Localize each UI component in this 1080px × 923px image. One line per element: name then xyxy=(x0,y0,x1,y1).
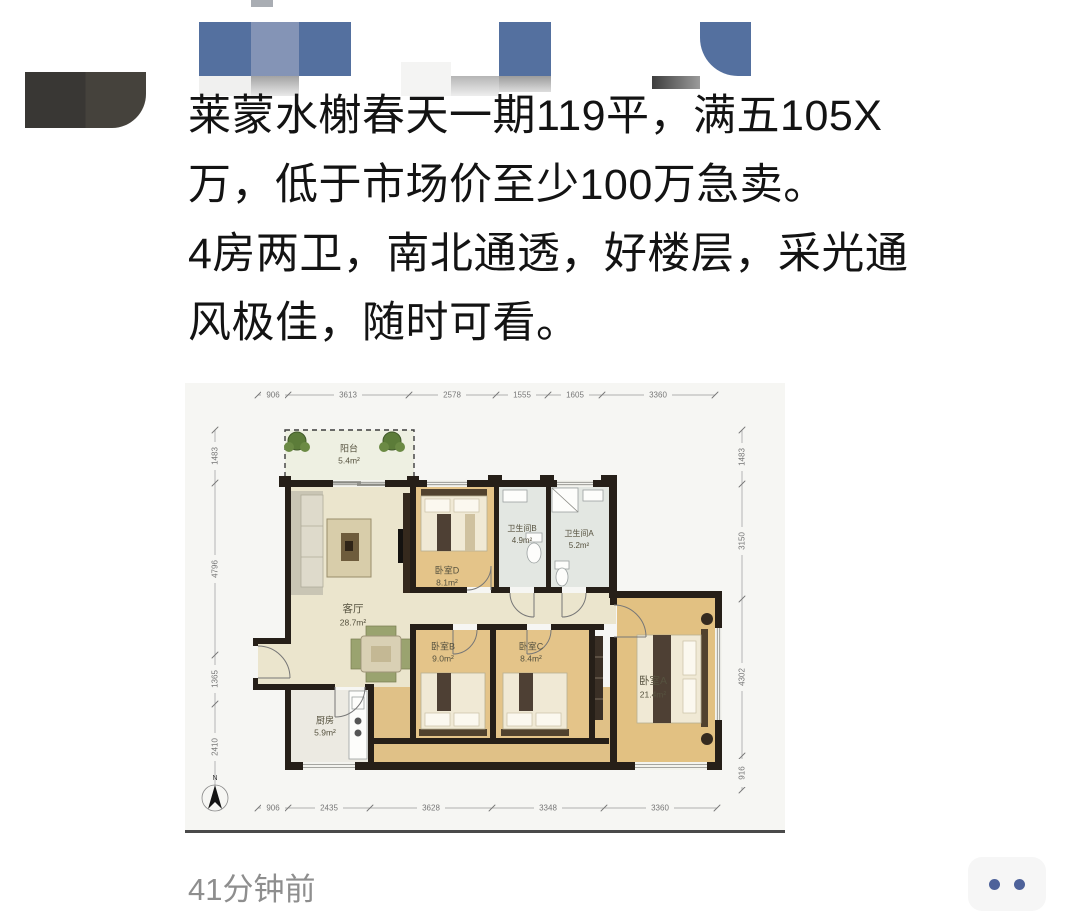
room-label-bedroom-b: 卧室B xyxy=(431,640,455,651)
dim-top-4: 1555 xyxy=(513,391,531,400)
dim-bottom-5: 3360 xyxy=(651,804,669,813)
room-label-bedroom-d: 卧室D xyxy=(435,564,460,575)
room-label-bath-b: 卫生间B xyxy=(507,523,536,533)
dim-left-1: 1483 xyxy=(211,447,220,465)
room-area-bedroom-a: 21.4m² xyxy=(640,689,667,699)
floorplan-svg: 阳台 5.4m² 客厅 28.7m² 卧室D 8.1m² 卫生间B 4.9m² … xyxy=(185,383,785,830)
dim-right-1: 1483 xyxy=(738,448,747,466)
dim-left-2: 4796 xyxy=(211,560,220,578)
room-label-balcony: 阳台 xyxy=(340,442,358,453)
dim-right-3: 4302 xyxy=(738,668,747,686)
room-label-living: 客厅 xyxy=(343,602,364,615)
north-compass-icon: N xyxy=(202,775,228,811)
dim-bottom-4: 3348 xyxy=(539,804,557,813)
north-label: N xyxy=(212,775,217,782)
two-dots-icon xyxy=(1014,879,1025,890)
dim-left-4: 2410 xyxy=(211,738,220,756)
room-label-bedroom-c: 卧室C xyxy=(519,640,544,651)
room-area-balcony: 5.4m² xyxy=(338,455,360,465)
post-timestamp: 41分钟前 xyxy=(188,864,315,909)
dim-bottom-1: 906 xyxy=(266,804,280,813)
mosaic-block xyxy=(499,22,551,76)
room-area-bedroom-b: 9.0m² xyxy=(432,653,454,663)
room-label-bedroom-a: 卧室A xyxy=(639,674,667,687)
room-area-kitchen: 5.9m² xyxy=(314,727,336,737)
dim-bottom-2: 2435 xyxy=(320,804,338,813)
mosaic-block xyxy=(251,0,273,7)
room-area-bedroom-d: 8.1m² xyxy=(436,577,458,587)
room-area-bath-b: 4.9m² xyxy=(512,536,533,545)
room-label-bath-a: 卫生间A xyxy=(564,528,594,538)
dim-right-4: 916 xyxy=(738,766,747,780)
comment-like-button[interactable] xyxy=(968,857,1046,911)
room-area-bedroom-c: 8.4m² xyxy=(520,653,542,663)
two-dots-icon xyxy=(989,879,1000,890)
dim-top-3: 2578 xyxy=(443,391,461,400)
mosaic-block xyxy=(251,22,299,76)
room-label-kitchen: 厨房 xyxy=(316,714,334,725)
avatar[interactable] xyxy=(25,72,146,128)
post-text-line: 莱蒙水榭春天一期119平，满五105X xyxy=(188,82,1038,151)
mosaic-block xyxy=(299,22,351,76)
room-area-bath-a: 5.2m² xyxy=(569,541,590,550)
dim-bottom-3: 3628 xyxy=(422,804,440,813)
post-text-line: 万，低于市场价至少100万急卖。 xyxy=(188,151,1038,220)
dim-right-2: 3150 xyxy=(738,532,747,550)
moments-post-page: 莱蒙水榭春天一期119平，满五105X 万，低于市场价至少100万急卖。 4房两… xyxy=(0,0,1080,923)
dim-top-6: 3360 xyxy=(649,391,667,400)
dim-top-2: 3613 xyxy=(339,391,357,400)
dim-left-3: 1365 xyxy=(211,670,220,688)
mosaic-block xyxy=(199,22,251,76)
post-text: 莱蒙水榭春天一期119平，满五105X 万，低于市场价至少100万急卖。 4房两… xyxy=(188,82,1038,358)
dim-top-5: 1605 xyxy=(566,391,584,400)
post-text-line: 4房两卫，南北通透，好楼层，采光通 xyxy=(188,220,1038,289)
post-text-line: 风极佳，随时可看。 xyxy=(188,289,1038,358)
floorplan-image[interactable]: 阳台 5.4m² 客厅 28.7m² 卧室D 8.1m² 卫生间B 4.9m² … xyxy=(185,383,785,833)
room-area-living: 28.7m² xyxy=(340,617,367,627)
mosaic-block xyxy=(700,22,751,76)
dim-top-1: 906 xyxy=(266,391,280,400)
